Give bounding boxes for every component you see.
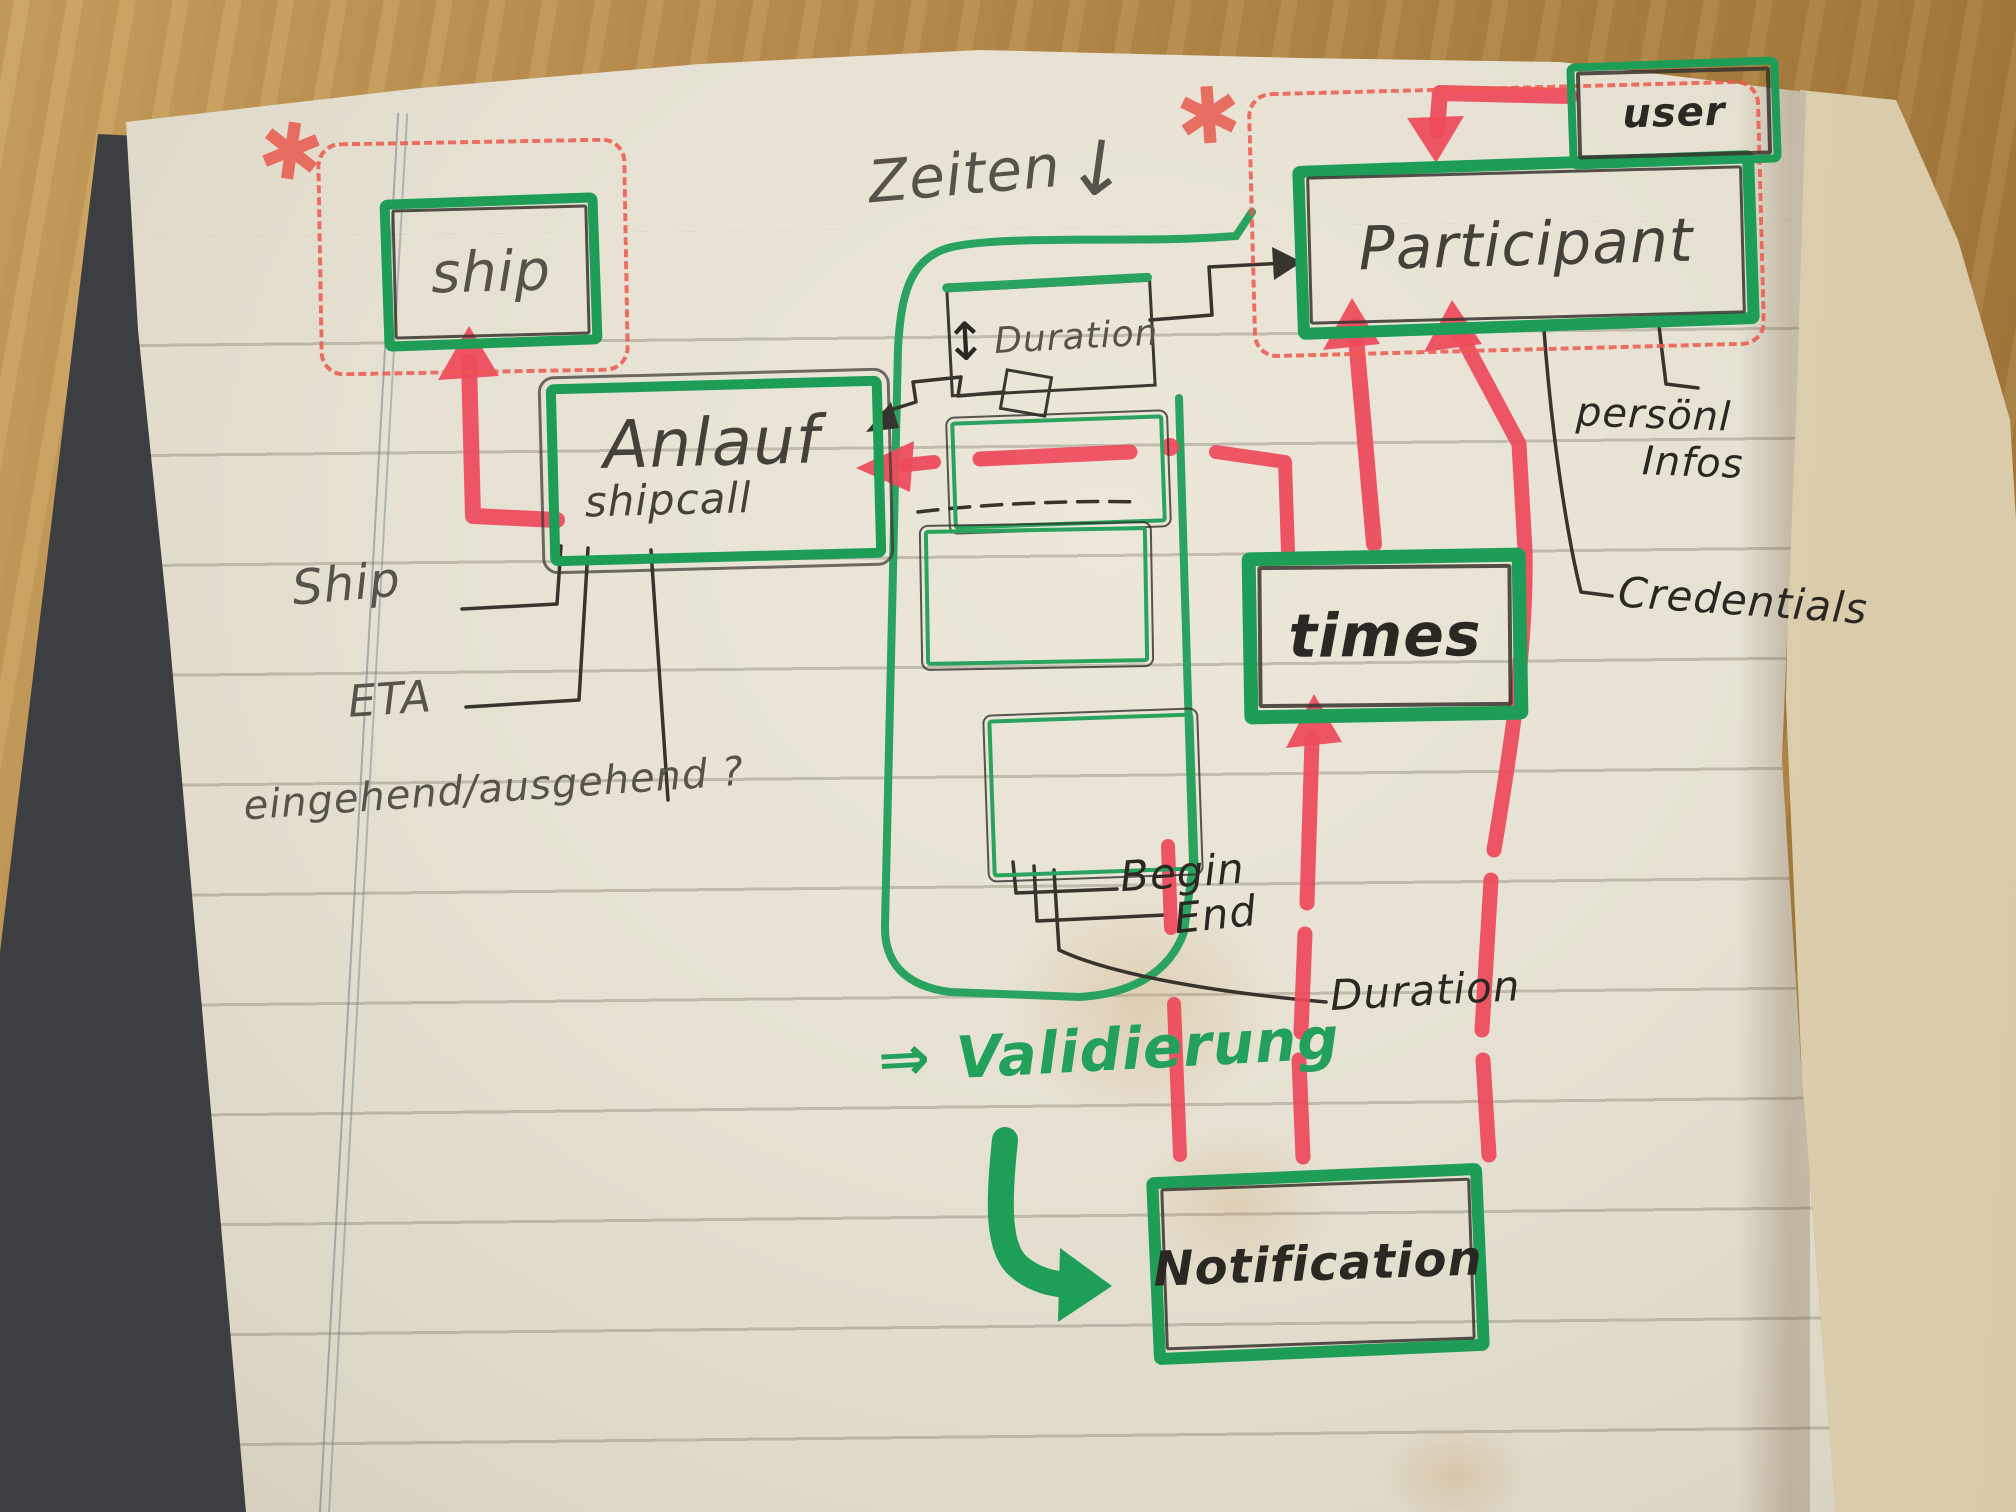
asterisk-icon: ✱ [1173,70,1245,164]
anlauf-box-label: Anlauf [602,401,821,484]
participant-box-label: Participant [1358,206,1695,285]
anlauf-box-sublabel: shipcall [584,473,752,526]
small-square [999,368,1054,418]
duration-attr-label: Duration [1329,961,1522,1020]
user-box-label: user [1622,89,1726,138]
time-slot-box-2 [924,526,1149,666]
user-box-inner: user [1576,66,1772,159]
ship-box-inner: ship [391,204,590,339]
down-arrow-icon: ↓ [1060,120,1136,217]
user-box: user [1566,56,1782,169]
validierung-arrow-icon: ⇒ [876,1021,933,1097]
anlauf-box: Anlauf shipcall [546,376,887,567]
end-attr-label: End [1172,886,1259,943]
participant-box: Participant [1292,150,1760,340]
participant-box-inner: Participant [1306,165,1746,324]
times-box-label: times [1288,600,1482,672]
ship-box-label: ship [430,238,551,306]
times-box: times [1242,548,1529,725]
time-slot-box-1 [950,414,1167,529]
personal-info-label-1: persönl [1575,389,1732,440]
notification-box: Notification [1146,1163,1490,1365]
eta-attr-label: ETA [346,671,433,728]
updown-arrow-icon: ↕ [942,311,990,373]
asterisk-icon: ✱ [252,104,330,202]
ship-box: ship [379,192,602,352]
times-box-inner: times [1257,564,1512,708]
notebook-photo: ✱ ✱ ship Anlauf shipcall Participant use… [0,0,2016,1512]
personal-info-label-2: Infos [1641,438,1744,488]
notification-box-label: Notification [1152,1230,1483,1297]
notification-box-inner: Notification [1160,1178,1475,1351]
ship-attr-label: Ship [290,551,403,616]
duration-box-label: Duration [993,312,1159,362]
